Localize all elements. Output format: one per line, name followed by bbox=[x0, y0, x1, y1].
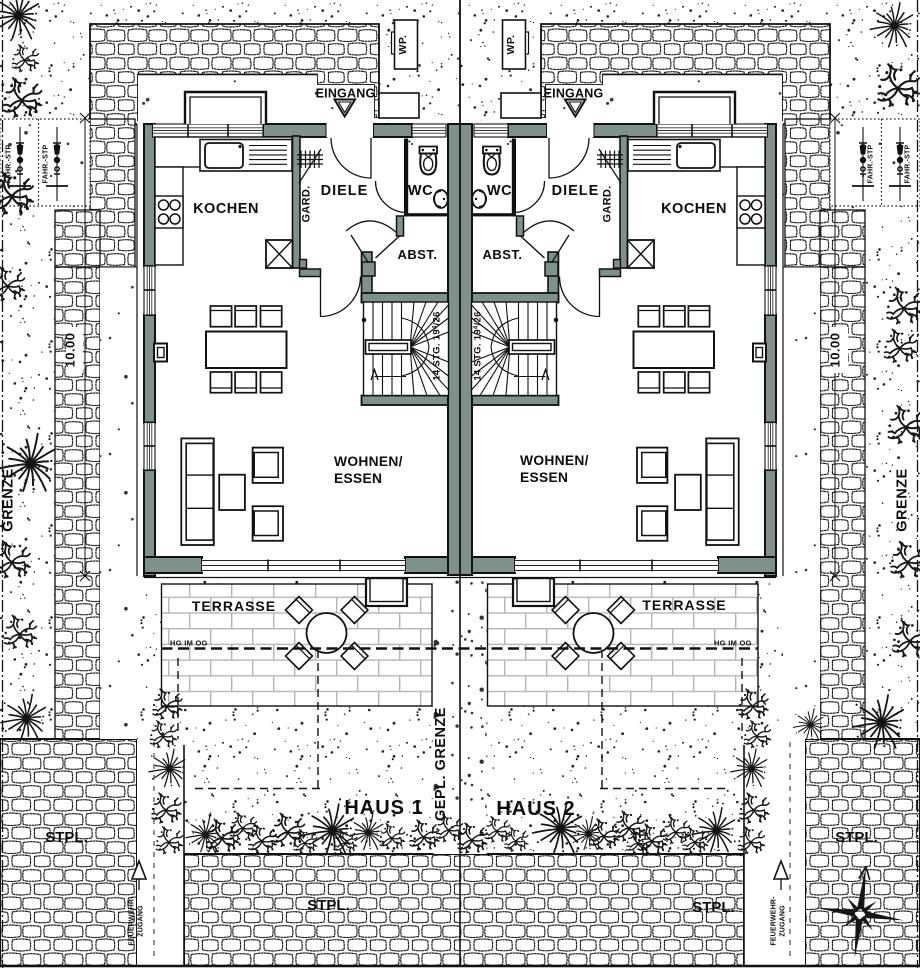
svg-text:TERRASSE: TERRASSE bbox=[192, 598, 276, 614]
svg-text:GEPL. GRENZE: GEPL. GRENZE bbox=[433, 707, 449, 821]
svg-text:DIELE: DIELE bbox=[552, 183, 600, 199]
svg-text:DIELE: DIELE bbox=[321, 183, 369, 199]
svg-text:TERRASSE: TERRASSE bbox=[642, 597, 726, 613]
svg-text:10.00: 10.00 bbox=[828, 332, 843, 367]
svg-text:WP.: WP. bbox=[397, 35, 409, 55]
svg-text:FEUERWEHR-: FEUERWEHR- bbox=[129, 896, 136, 946]
svg-text:GARD.: GARD. bbox=[301, 186, 313, 223]
svg-text:WOHNEN/: WOHNEN/ bbox=[520, 453, 589, 468]
svg-text:14 STG. 194/26: 14 STG. 194/26 bbox=[473, 311, 484, 380]
svg-text:ESSEN: ESSEN bbox=[520, 470, 568, 485]
svg-text:HG IM OG: HG IM OG bbox=[170, 639, 208, 648]
svg-text:ZUGANG: ZUGANG bbox=[780, 905, 787, 937]
svg-text:WC: WC bbox=[487, 183, 512, 199]
svg-text:FAHR.-STP: FAHR.-STP bbox=[43, 144, 50, 183]
svg-text:STPL.: STPL. bbox=[835, 829, 878, 846]
svg-text:14 STG. 194/26: 14 STG. 194/26 bbox=[432, 311, 443, 380]
svg-text:KOCHEN: KOCHEN bbox=[661, 201, 727, 217]
svg-text:WC: WC bbox=[408, 183, 433, 199]
svg-text:HAUS 2: HAUS 2 bbox=[496, 798, 575, 820]
svg-text:HAUS 1: HAUS 1 bbox=[344, 797, 423, 819]
svg-text:STPL.: STPL. bbox=[45, 829, 88, 846]
svg-text:FAHR.-STP: FAHR.-STP bbox=[905, 144, 912, 183]
svg-text:WP.: WP. bbox=[505, 35, 517, 55]
svg-text:WOHNEN/: WOHNEN/ bbox=[334, 454, 403, 469]
svg-text:EINGANG: EINGANG bbox=[544, 87, 604, 101]
svg-text:GRENZE: GRENZE bbox=[1, 468, 17, 531]
svg-text:KOCHEN: KOCHEN bbox=[193, 201, 259, 217]
svg-text:ZUGANG: ZUGANG bbox=[138, 905, 145, 937]
svg-text:GARD.: GARD. bbox=[602, 186, 614, 223]
svg-text:FEUERWEHR-: FEUERWEHR- bbox=[771, 896, 778, 946]
svg-text:ESSEN: ESSEN bbox=[334, 471, 382, 486]
svg-text:HG IM OG: HG IM OG bbox=[714, 639, 752, 648]
svg-text:EINGANG: EINGANG bbox=[316, 87, 376, 101]
svg-text:ABST.: ABST. bbox=[482, 247, 522, 262]
svg-text:10.00: 10.00 bbox=[63, 332, 78, 367]
svg-text:ABST.: ABST. bbox=[397, 247, 437, 262]
svg-text:STPL.: STPL. bbox=[307, 897, 350, 914]
svg-text:STPL.: STPL. bbox=[692, 899, 735, 916]
svg-text:FAHR.-STP: FAHR.-STP bbox=[868, 144, 875, 183]
svg-text:GRENZE: GRENZE bbox=[895, 468, 911, 531]
